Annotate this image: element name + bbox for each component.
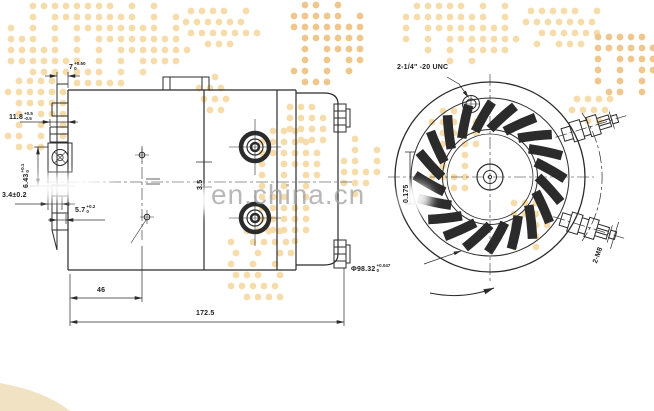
dim-value: 0.175 — [403, 184, 410, 203]
technical-drawing-canvas: en.china.cn 7+0.50011.8+0.5-0.56.43+0.10… — [0, 0, 654, 411]
dim-d11-8-label: 11.8+0.5-0.5 — [9, 113, 33, 122]
dim-value: 11.8 — [9, 114, 23, 121]
dim-d3-5-label: 3.5 — [197, 180, 204, 190]
watermark-text: en.china.cn — [211, 179, 365, 211]
dim-tolerance: +0.20 — [86, 205, 95, 214]
dim-dia98-label: Φ98.32+0.0470 — [351, 265, 390, 274]
dim-value: 7 — [69, 64, 73, 71]
dim-tolerance: +0.5-0.5 — [24, 112, 33, 121]
dim-d172-5-label: 172.5 — [196, 310, 215, 317]
tol-lower: 0 — [376, 269, 390, 274]
map-corner-blob — [0, 383, 70, 411]
dim-d6-43-label: 6.43+0.10 — [22, 164, 31, 188]
dim-value: 46 — [97, 287, 105, 294]
dim-tolerance: +0.10 — [21, 164, 30, 173]
dim-d5-7-label: 5.7+0.20 — [75, 206, 95, 215]
dim-value: 6.43 — [23, 174, 30, 188]
dim-d7-label: 7+0.500 — [69, 63, 85, 72]
dim-tolerance: +0.500 — [74, 62, 85, 71]
dim-d0-175-label: 0.175 — [403, 184, 410, 203]
dim-value: 172.5 — [196, 310, 215, 317]
tol-lower: 0 — [74, 67, 85, 72]
outlet-fitting — [552, 106, 629, 147]
dim-d3-4-label: 3.4±0.2 — [2, 192, 27, 199]
tol-lower: 0 — [26, 164, 31, 173]
tol-lower: 0 — [86, 210, 95, 215]
dim-tolerance: +0.0470 — [376, 264, 390, 273]
dim-d46-label: 46 — [97, 287, 105, 294]
dim-value: 3.5 — [197, 180, 204, 190]
dim-value: 5.7 — [75, 207, 85, 214]
dim-value: Φ98.32 — [351, 266, 375, 273]
tol-lower: -0.5 — [24, 117, 33, 122]
dim-value: 3.4±0.2 — [2, 192, 27, 199]
dim-value: 2-1/4" -20 UNC — [397, 64, 448, 71]
dim-thread-note-label: 2-1/4" -20 UNC — [397, 64, 448, 71]
